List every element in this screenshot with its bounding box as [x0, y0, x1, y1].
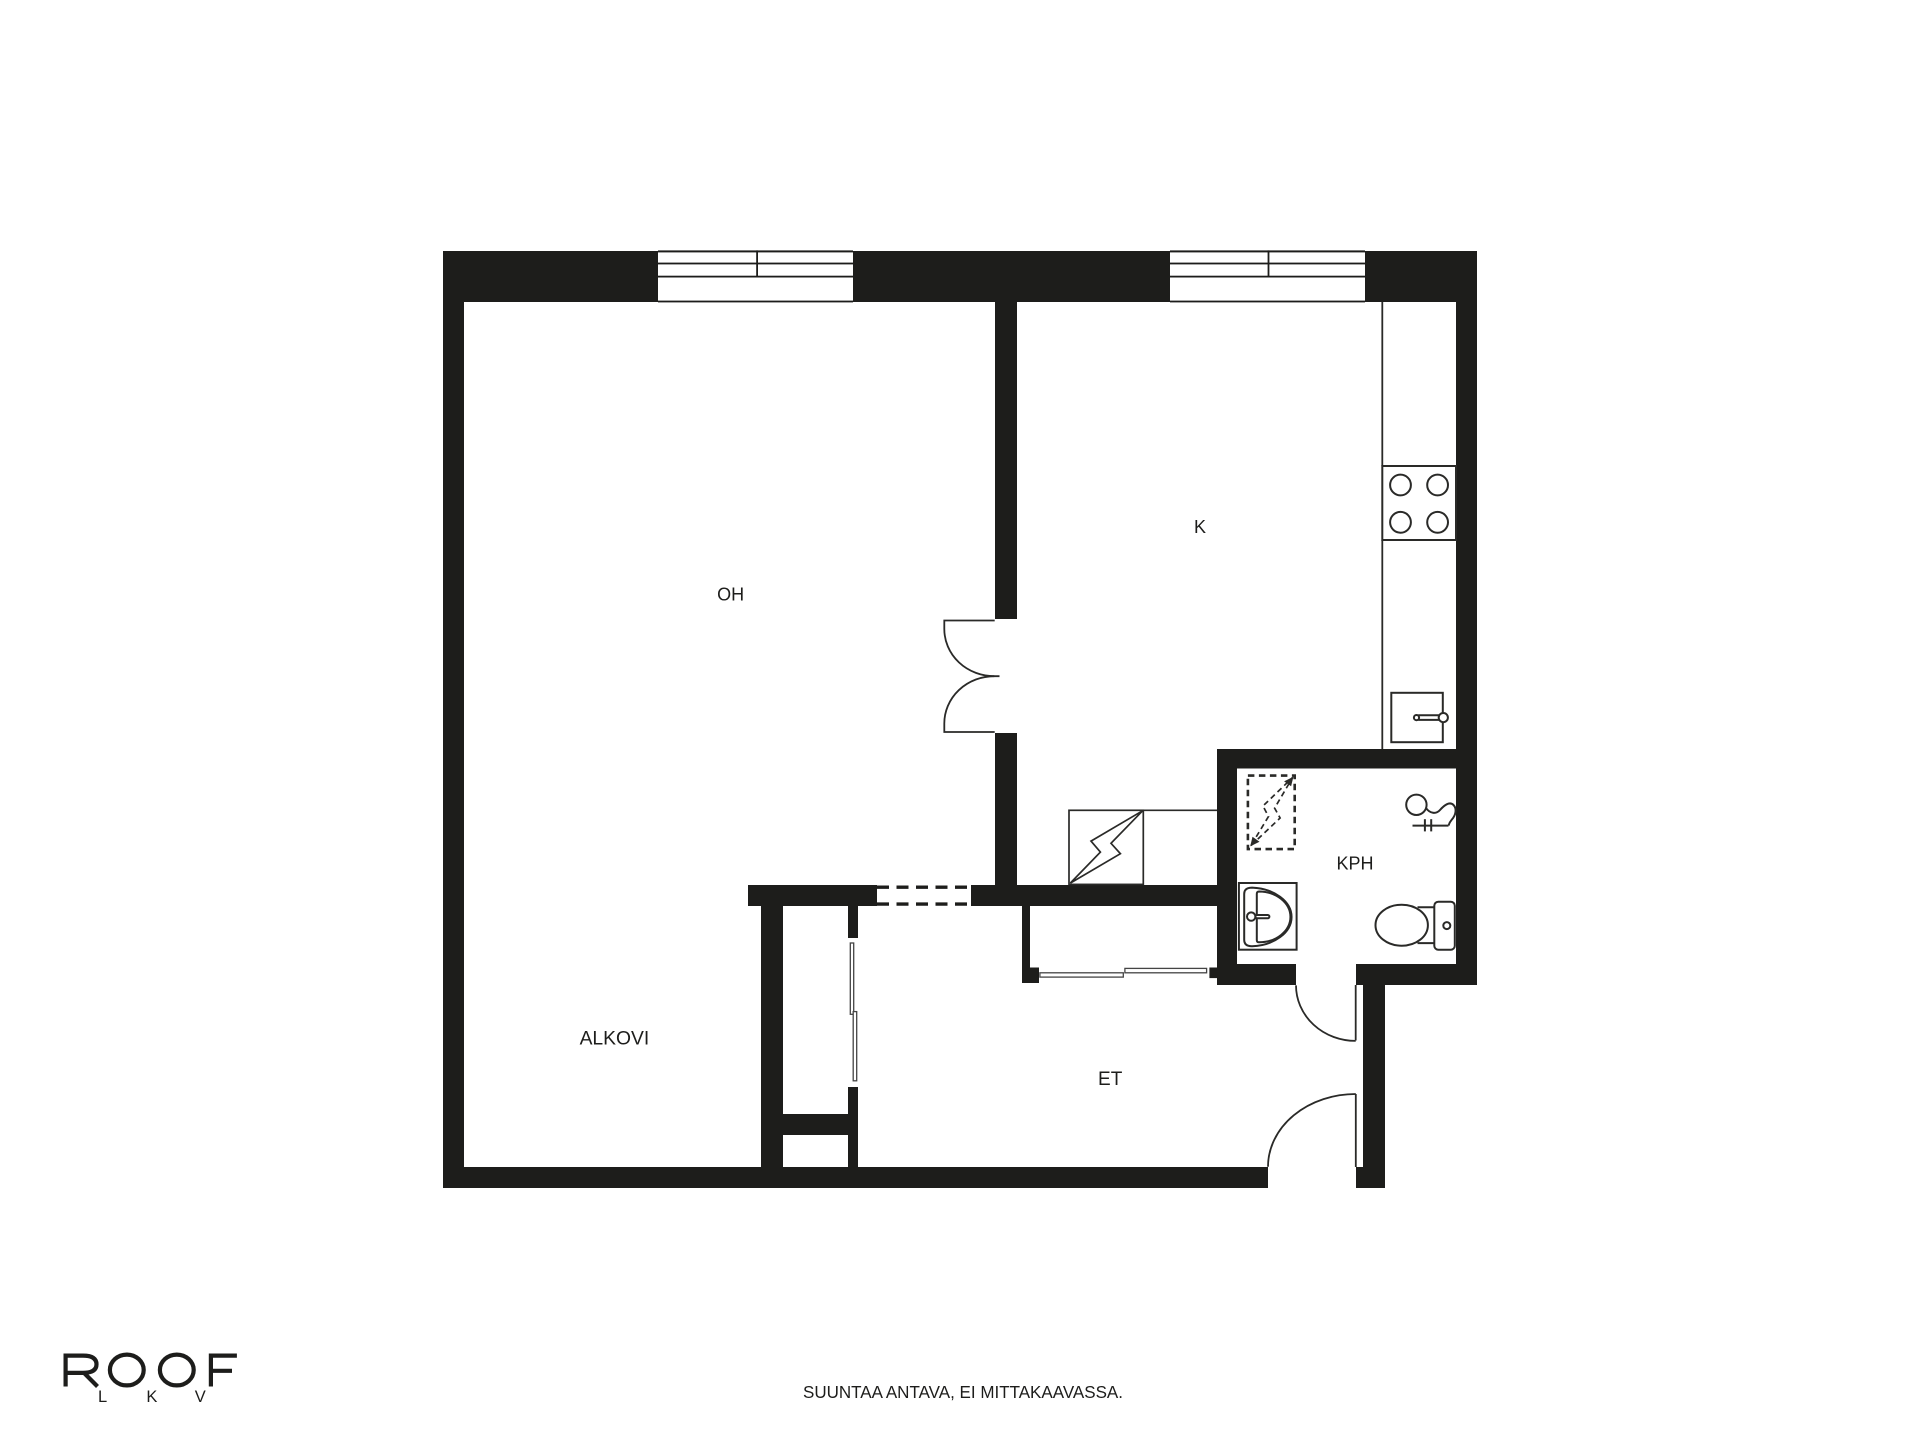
svg-text:K: K [1194, 517, 1206, 537]
svg-text:V: V [195, 1388, 206, 1406]
svg-text:ALKOVI: ALKOVI [580, 1029, 650, 1050]
svg-text:L: L [98, 1388, 107, 1406]
svg-text:OH: OH [717, 584, 744, 604]
svg-text:KPH: KPH [1336, 854, 1373, 874]
svg-text:ET: ET [1098, 1069, 1123, 1090]
svg-text:K: K [146, 1388, 157, 1406]
svg-text:SUUNTAA ANTAVA, EI MITTAKAAVAS: SUUNTAA ANTAVA, EI MITTAKAAVASSA. [803, 1382, 1123, 1402]
